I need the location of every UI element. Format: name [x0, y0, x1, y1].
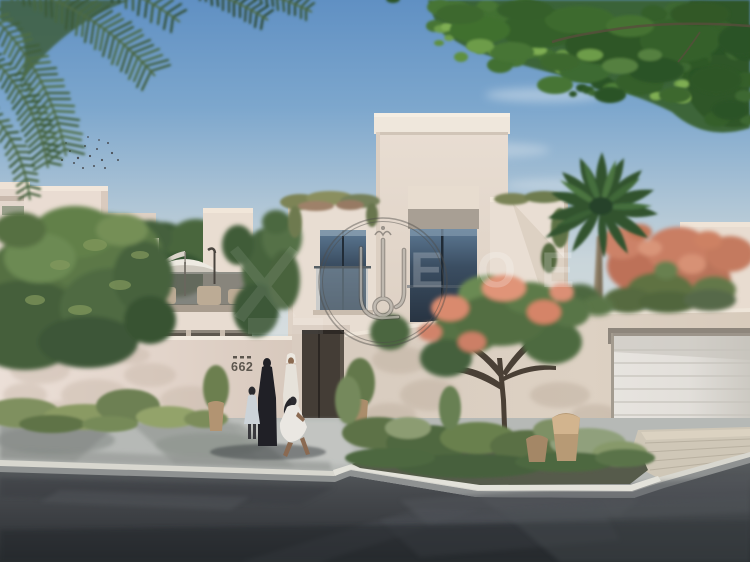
svg-text:E: E: [541, 242, 574, 298]
svg-text:O: O: [477, 242, 516, 298]
svg-text:662: 662: [231, 360, 253, 374]
